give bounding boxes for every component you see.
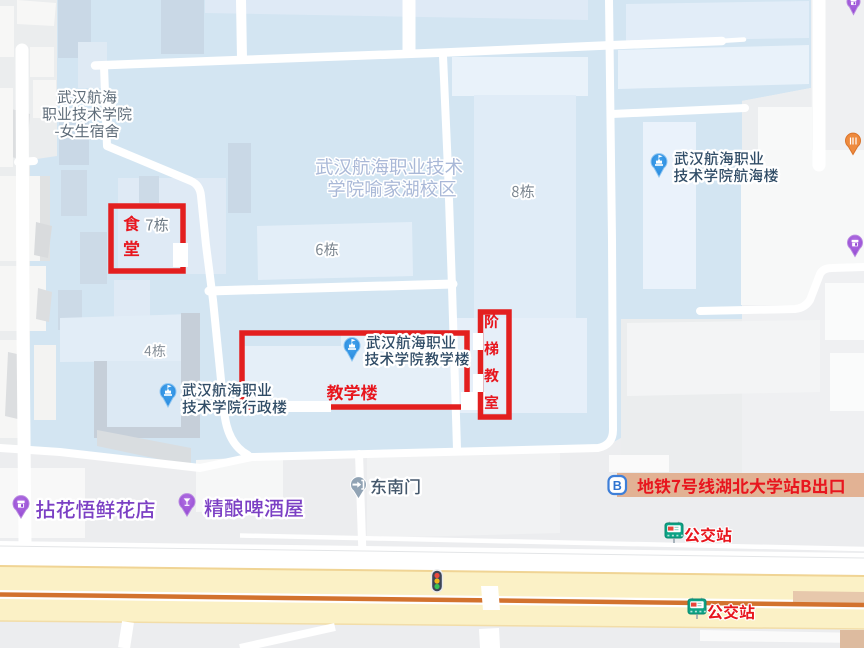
svg-text:B: B: [613, 479, 622, 493]
